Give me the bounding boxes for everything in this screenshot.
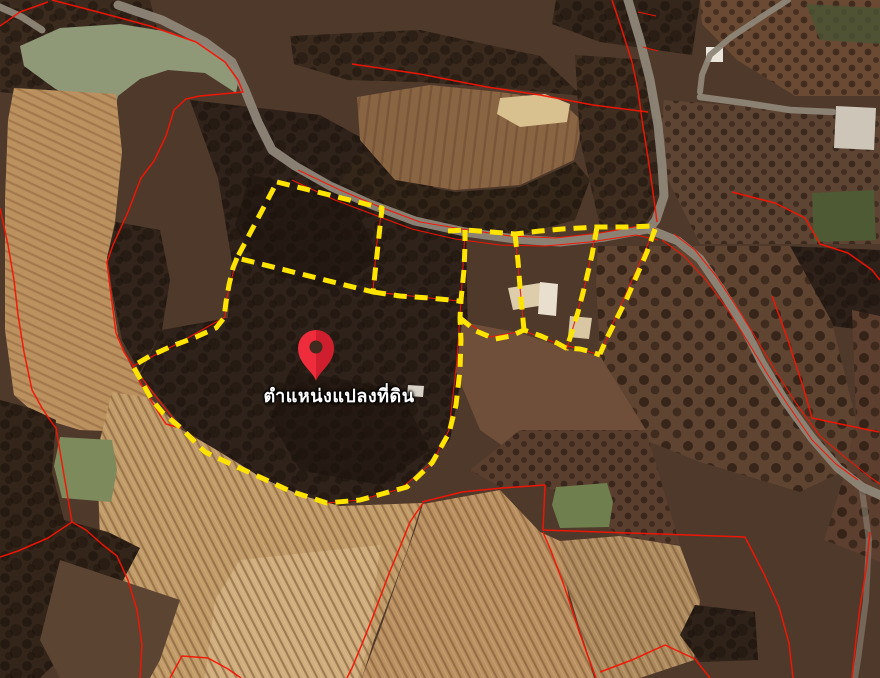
field-green-east (812, 190, 876, 242)
map-canvas[interactable]: ตำแหน่งแปลงที่ดิน (0, 0, 880, 678)
shed-near-pin (407, 385, 424, 397)
pin-hole (310, 341, 323, 354)
pond-south (552, 483, 613, 528)
building-cluster-b (538, 282, 558, 316)
satellite-map[interactable] (0, 0, 880, 678)
building-east-large (834, 106, 876, 150)
